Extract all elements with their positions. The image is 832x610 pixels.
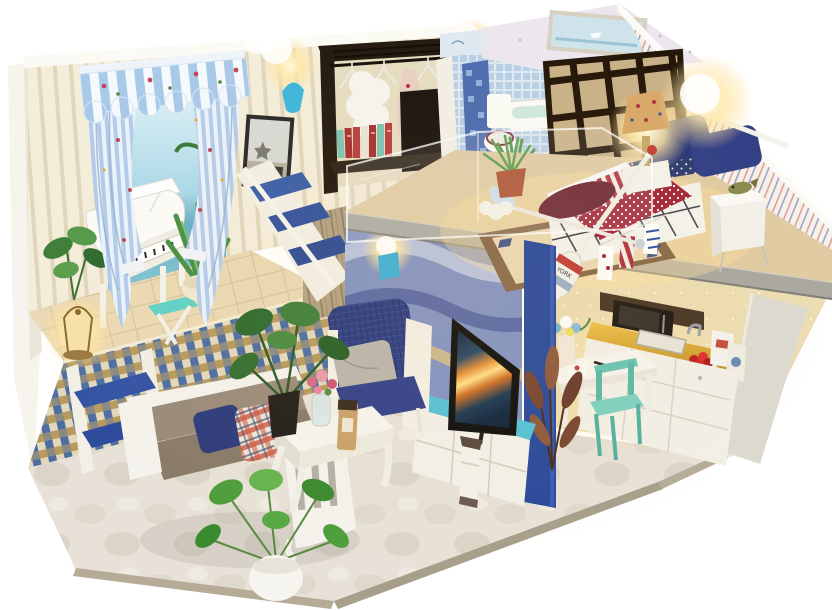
ambient-warm-light [20, 10, 832, 570]
hall-glare [242, 22, 274, 54]
photo-stage: YORK [0, 0, 832, 610]
dollhouse-photo: YORK [0, 0, 832, 610]
